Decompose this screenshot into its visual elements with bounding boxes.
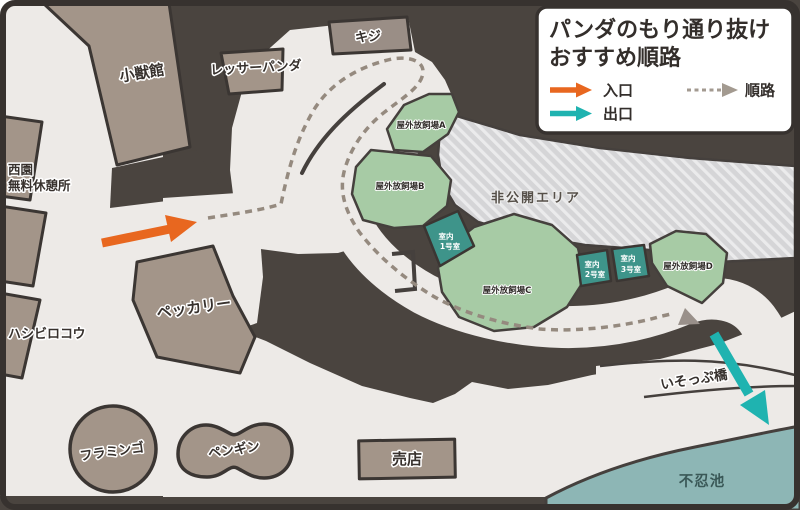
indoor-room-2-label-line1: 室内 bbox=[585, 259, 600, 269]
enclosure-d-label: 屋外放飼場D bbox=[663, 261, 713, 272]
legend-route-label: 順路 bbox=[744, 82, 776, 100]
legend-title-line2: おすすめ順路 bbox=[549, 45, 682, 71]
enclosure-b-label: 屋外放飼場B bbox=[376, 181, 425, 192]
zoo-map: 非公開エリア 屋外放飼場A 屋外放飼場B 屋外放飼場C 屋外放飼場D 室内 1号… bbox=[0, 0, 800, 510]
legend: パンダのもり通り抜け おすすめ順路 入口 順路 出口 bbox=[537, 7, 793, 133]
legend-exit-label: 出口 bbox=[603, 105, 633, 123]
pheasant-label: キジ bbox=[355, 29, 382, 46]
indoor-room-1-label-line2: 1号室 bbox=[440, 241, 461, 251]
private-area-label: 非公開エリア bbox=[491, 190, 581, 206]
indoor-room-3-label-line1: 室内 bbox=[621, 253, 636, 263]
indoor-room-1-label-line1: 室内 bbox=[439, 231, 454, 241]
pond-label: 不忍池 bbox=[679, 472, 726, 490]
indoor-room-2-label-line2: 2号室 bbox=[585, 269, 606, 279]
shop-label: 売店 bbox=[392, 450, 422, 468]
indoor-room-3 bbox=[612, 245, 649, 281]
west-rest-area-label-line2: 無料休憩所 bbox=[8, 178, 71, 193]
shoebill-label: ハシビロコウ bbox=[8, 326, 85, 342]
indoor-room-3-label-line2: 3号室 bbox=[621, 264, 642, 274]
legend-title-line1: パンダのもり通り抜け bbox=[549, 17, 770, 43]
map-canvas: 非公開エリア 屋外放飼場A 屋外放飼場B 屋外放飼場C 屋外放飼場D 室内 1号… bbox=[0, 0, 800, 510]
enclosure-a-label: 屋外放飼場A bbox=[396, 120, 446, 131]
west-rest-area-label-line1: 西園 bbox=[8, 162, 33, 177]
enclosure-c-label: 屋外放飼場C bbox=[483, 285, 532, 296]
legend-entrance-label: 入口 bbox=[603, 82, 633, 100]
